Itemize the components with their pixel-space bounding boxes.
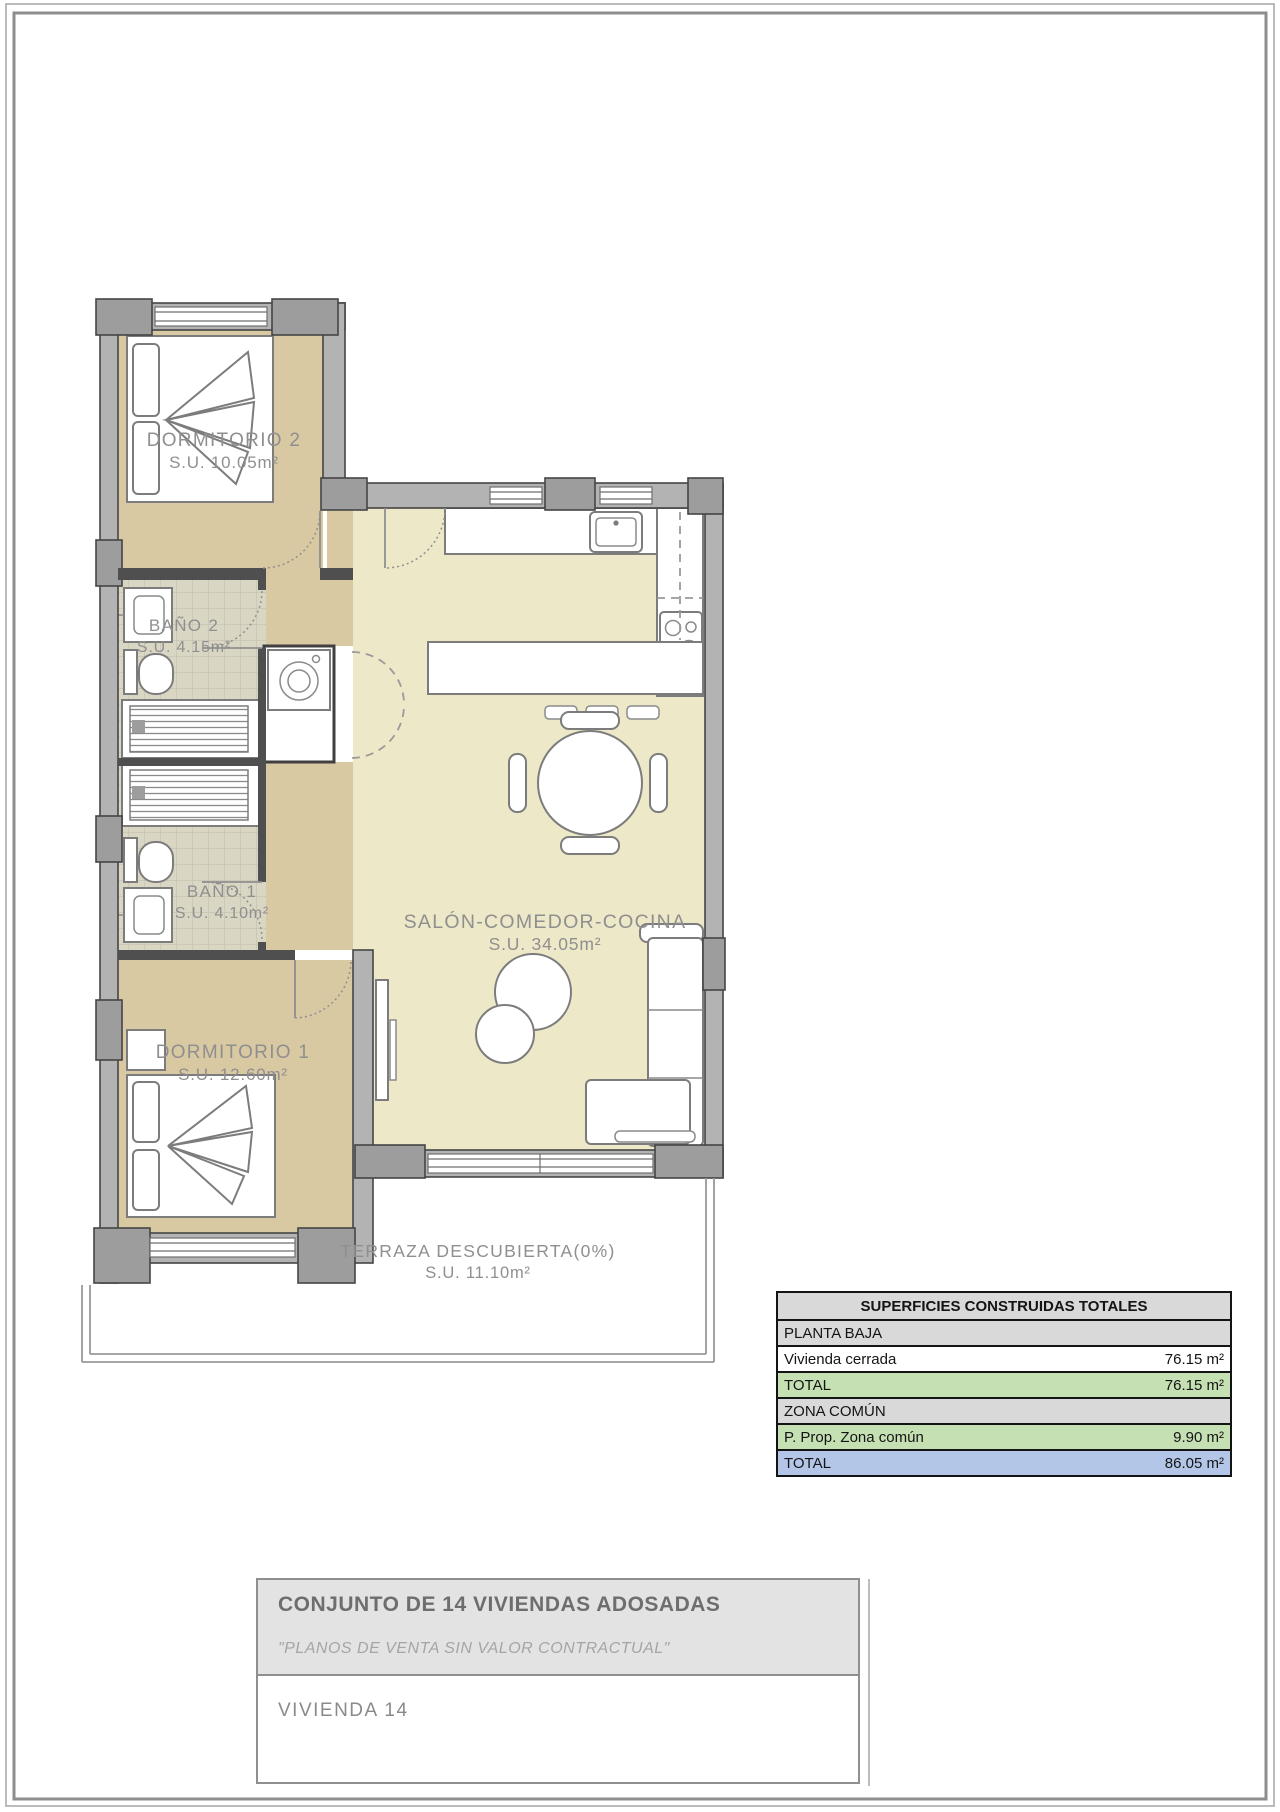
row-label: ZONA COMÚN: [784, 1403, 886, 1420]
room-area: S.U. 12.60m²: [178, 1065, 288, 1084]
project-title: CONJUNTO DE 14 VIVIENDAS ADOSADAS: [278, 1593, 858, 1617]
row-label: P. Prop. Zona común: [784, 1429, 924, 1446]
bathtub-icon: [122, 764, 262, 826]
row-label: PLANTA BAJA: [784, 1325, 882, 1342]
window: [155, 307, 267, 326]
row-label: TOTAL: [784, 1377, 831, 1394]
disclaimer-text: "PLANOS DE VENTA SIN VALOR CONTRACTUAL": [278, 1640, 858, 1658]
room-label: BAÑO 1: [187, 882, 257, 901]
floor-hall: [327, 508, 353, 570]
window: [150, 1238, 295, 1257]
table-title-row: SUPERFICIES CONSTRUIDAS TOTALES: [778, 1293, 1230, 1319]
table-row: P. Prop. Zona común 9.90 m²: [778, 1423, 1230, 1449]
floor-plan-sheet: { "page": { "background": "#ffffff", "fr…: [0, 0, 1280, 1812]
title-block-shadow-line: [868, 1579, 870, 1786]
title-block-header: CONJUNTO DE 14 VIVIENDAS ADOSADAS "PLANO…: [258, 1580, 858, 1676]
floor-plan-drawing: DORMITORIO 2 S.U. 10.05m² BAÑO 2 S.U. 4.…: [0, 0, 1280, 1812]
dining-table-icon: [538, 731, 642, 835]
window: [490, 487, 542, 504]
dining-chair-icon: [509, 754, 526, 812]
room-area: S.U. 4.15m²: [137, 639, 231, 656]
room-area: S.U. 11.10m²: [425, 1264, 531, 1282]
unit-name: VIVIENDA 14: [258, 1676, 858, 1722]
window: [428, 1154, 653, 1173]
washing-machine-icon: [268, 650, 330, 710]
room-area: S.U. 34.05m²: [489, 934, 602, 954]
toilet-icon: [124, 838, 173, 882]
row-value: 86.05 m²: [1165, 1455, 1224, 1472]
room-area: S.U. 10.05m²: [169, 453, 279, 472]
row-value: 76.15 m²: [1165, 1377, 1224, 1394]
room-label: DORMITORIO 2: [147, 430, 302, 451]
table-row: PLANTA BAJA: [778, 1319, 1230, 1345]
bathtub-icon: [122, 700, 262, 758]
room-label: SALÓN-COMEDOR-COCINA: [404, 910, 687, 933]
table-row: Vivienda cerrada 76.15 m²: [778, 1345, 1230, 1371]
row-value: 9.90 m²: [1173, 1429, 1224, 1446]
kitchen-peninsula: [428, 642, 703, 694]
room-label: BAÑO 2: [149, 616, 219, 635]
table-row: TOTAL 76.15 m²: [778, 1371, 1230, 1397]
coffee-table-icon: [476, 1005, 534, 1063]
dining-chair-icon: [650, 754, 667, 812]
table-row: ZONA COMÚN: [778, 1397, 1230, 1423]
kitchen-sink-icon: [590, 512, 642, 552]
areas-summary-table: SUPERFICIES CONSTRUIDAS TOTALES PLANTA B…: [776, 1291, 1232, 1477]
room-area: S.U. 4.10m²: [175, 905, 269, 922]
room-label: DORMITORIO 1: [156, 1042, 311, 1063]
bar-stool-icon: [627, 706, 659, 719]
double-bed-icon: [127, 336, 273, 502]
toilet-icon: [124, 650, 173, 694]
table-row: TOTAL 86.05 m²: [778, 1449, 1230, 1475]
title-block: CONJUNTO DE 14 VIVIENDAS ADOSADAS "PLANO…: [256, 1578, 860, 1784]
double-bed-icon: [127, 1075, 275, 1217]
dining-chair-icon: [561, 712, 619, 729]
table-title: SUPERFICIES CONSTRUIDAS TOTALES: [861, 1298, 1148, 1315]
floor-hall: [266, 762, 353, 950]
row-label: Vivienda cerrada: [784, 1351, 896, 1368]
row-value: 76.15 m²: [1165, 1351, 1224, 1368]
row-label: TOTAL: [784, 1455, 831, 1472]
room-label: TERRAZA DESCUBIERTA(0%): [340, 1241, 615, 1261]
window: [600, 487, 652, 504]
dining-chair-icon: [561, 837, 619, 854]
